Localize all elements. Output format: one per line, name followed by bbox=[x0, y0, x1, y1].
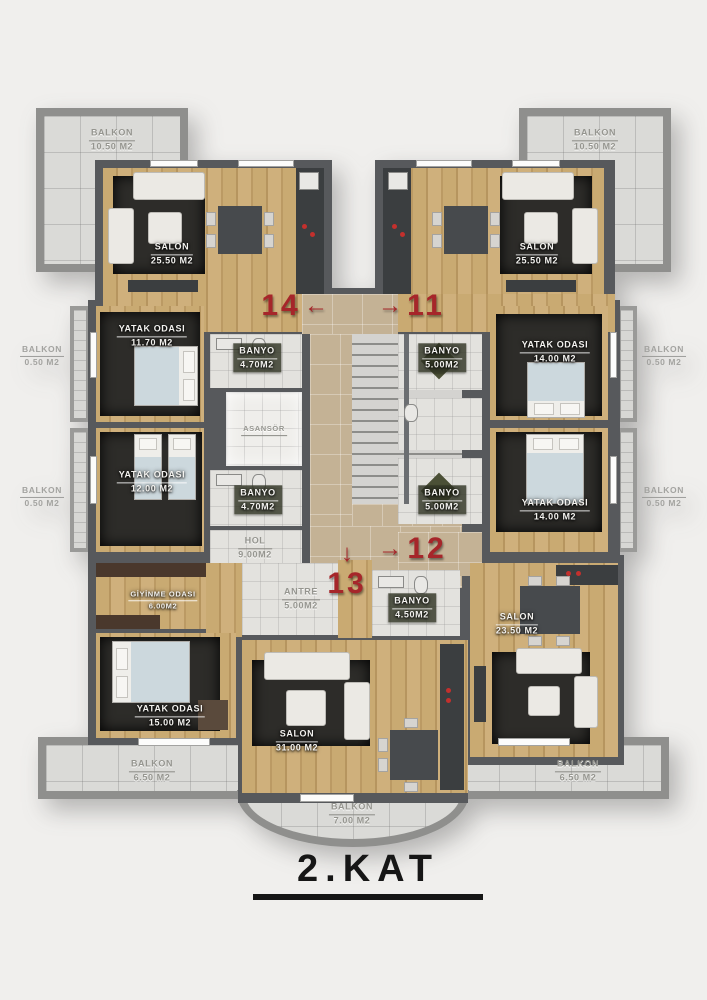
balcony-side-left-upper bbox=[70, 306, 90, 422]
sofa bbox=[516, 648, 582, 674]
unit-number-14: 14 bbox=[261, 289, 300, 323]
blanket bbox=[135, 347, 179, 405]
dining-table bbox=[444, 206, 488, 254]
fridge-icon bbox=[299, 172, 319, 190]
coffee-table bbox=[286, 690, 326, 726]
cooktop-burner-icon bbox=[392, 224, 397, 229]
balcony-label-left-lower: BALKON 0.50 M2 bbox=[20, 485, 64, 509]
arrow-down-icon: ↓ bbox=[341, 540, 353, 568]
balcony-label-right-upper: BALKON 0.50 M2 bbox=[642, 344, 686, 368]
hall-strip-bottom-left bbox=[206, 563, 242, 637]
sink-icon bbox=[216, 474, 242, 486]
arrow-left-icon: ← bbox=[304, 292, 328, 320]
blanket bbox=[528, 363, 584, 401]
chair bbox=[264, 212, 274, 226]
chair bbox=[264, 234, 274, 248]
room-label-salon-bc: SALON 31.00 M2 bbox=[276, 728, 318, 753]
toilet-icon bbox=[404, 404, 418, 422]
unit-number-11: 11 bbox=[407, 289, 445, 323]
chair bbox=[378, 738, 388, 752]
balcony-side-left-lower bbox=[70, 428, 90, 552]
room-label-antre: ANTRE 5.00M2 bbox=[282, 586, 320, 611]
window bbox=[150, 160, 198, 167]
room-label-giyinme: GİYİNME ODASI 6.00M2 bbox=[128, 589, 197, 611]
tv-unit bbox=[128, 280, 198, 292]
cooktop-burner-icon bbox=[310, 232, 315, 237]
toilet-icon bbox=[414, 576, 428, 594]
dining-table bbox=[390, 730, 438, 780]
cooktop-burner-icon bbox=[446, 688, 451, 693]
room-label-bedroom-1400-upper: YATAK ODASI 14.00 M2 bbox=[520, 339, 590, 364]
kitchen-counter-bottom-center bbox=[440, 644, 464, 790]
balcony-door bbox=[498, 738, 570, 746]
room-label-banyo-bc: BANYO 4.50M2 bbox=[388, 593, 436, 622]
chair bbox=[378, 758, 388, 772]
pillow bbox=[560, 403, 580, 415]
pillow bbox=[533, 438, 553, 450]
room-label-banyo-ul: BANYO 4.70M2 bbox=[233, 343, 281, 372]
balcony-label-tr: BALKON 10.50 M2 bbox=[572, 127, 618, 152]
sofa bbox=[133, 172, 205, 200]
chair bbox=[490, 212, 500, 226]
tv-unit bbox=[506, 280, 576, 292]
chair bbox=[206, 212, 216, 226]
room-label-hol: HOL 9.00M2 bbox=[238, 535, 272, 560]
room-label-bedroom-1400-lower: YATAK ODASI 14.00 M2 bbox=[520, 497, 590, 522]
room-label-salon-br: SALON 23.50 M2 bbox=[496, 611, 538, 636]
cooktop-burner-icon bbox=[576, 571, 581, 576]
armchair bbox=[344, 682, 370, 740]
room-label-banyo-ur: BANYO 5.00M2 bbox=[418, 343, 466, 372]
window bbox=[610, 332, 617, 378]
room-label-bedroom-1200: YATAK ODASI 12.00 M2 bbox=[117, 469, 187, 494]
chair bbox=[490, 234, 500, 248]
chair bbox=[556, 576, 570, 586]
room-label-salon-tl: SALON 25.50 M2 bbox=[151, 241, 193, 266]
blanket bbox=[131, 642, 189, 702]
dining-table bbox=[218, 206, 262, 254]
pillow bbox=[534, 403, 554, 415]
chair bbox=[528, 636, 542, 646]
balcony-label-tl: BALKON 10.50 M2 bbox=[89, 127, 135, 152]
sofa bbox=[502, 172, 574, 200]
pillow bbox=[173, 438, 191, 450]
balcony-label-bl: BALKON 6.50 M2 bbox=[129, 758, 175, 783]
balcony-label-br: BALKON 6.50 M2 bbox=[555, 758, 601, 783]
sofa bbox=[264, 652, 350, 680]
fridge-icon bbox=[388, 172, 408, 190]
arrow-right-icon: → bbox=[378, 292, 402, 320]
cooktop-burner-icon bbox=[400, 232, 405, 237]
coffee-table bbox=[148, 212, 182, 244]
room-label-banyo-lr: BANYO 5.00M2 bbox=[418, 485, 466, 514]
bed bbox=[526, 434, 584, 504]
window bbox=[416, 160, 472, 167]
chair bbox=[206, 234, 216, 248]
tv-unit bbox=[474, 666, 486, 722]
wardrobe bbox=[96, 563, 206, 577]
balcony-side-right-upper bbox=[617, 306, 637, 422]
unit-number-12: 12 bbox=[407, 532, 446, 566]
coffee-table bbox=[524, 212, 558, 244]
coffee-table bbox=[528, 686, 560, 716]
window bbox=[90, 456, 97, 504]
chair bbox=[528, 576, 542, 586]
sink-icon bbox=[378, 576, 404, 588]
balcony-side-right-lower bbox=[617, 428, 637, 552]
pillow bbox=[183, 351, 195, 373]
room-label-elevator: ASANSÖR bbox=[241, 424, 287, 436]
wardrobe bbox=[96, 615, 160, 629]
blanket bbox=[527, 453, 583, 503]
room-label-banyo-ll: BANYO 4.70M2 bbox=[234, 485, 282, 514]
room-label-salon-tr: SALON 25.50 M2 bbox=[516, 241, 558, 266]
armchair bbox=[572, 208, 598, 264]
armchair bbox=[108, 208, 134, 264]
pillow bbox=[116, 676, 128, 698]
room-label-bedroom-1170: YATAK ODASI 11.70 M2 bbox=[117, 323, 187, 348]
window bbox=[610, 456, 617, 504]
bed bbox=[134, 346, 198, 406]
balcony-door bbox=[138, 738, 210, 746]
pillow bbox=[139, 438, 157, 450]
chair bbox=[432, 234, 442, 248]
balcony-label-left-upper: BALKON 0.50 M2 bbox=[20, 344, 64, 368]
room-label-bedroom-1500: YATAK ODASI 15.00 M2 bbox=[135, 703, 205, 728]
pillow bbox=[183, 379, 195, 401]
unit-number-13: 13 bbox=[327, 567, 366, 601]
window bbox=[90, 332, 97, 378]
pillow bbox=[559, 438, 579, 450]
pillow bbox=[116, 648, 128, 670]
chair bbox=[432, 212, 442, 226]
chair bbox=[404, 782, 418, 792]
armchair bbox=[574, 676, 598, 728]
bed bbox=[527, 362, 585, 418]
corridor-vertical bbox=[310, 334, 352, 534]
chair bbox=[404, 718, 418, 728]
balcony-label-bc: BALKON 7.00 M2 bbox=[329, 801, 375, 826]
balcony-label-right-lower: BALKON 0.50 M2 bbox=[642, 485, 686, 509]
chair bbox=[556, 636, 570, 646]
window bbox=[238, 160, 294, 167]
window bbox=[512, 160, 560, 167]
floor-title: 2.KAT bbox=[253, 848, 483, 900]
cooktop-burner-icon bbox=[302, 224, 307, 229]
arrow-right-icon: → bbox=[378, 535, 402, 563]
cooktop-burner-icon bbox=[446, 698, 451, 703]
bed bbox=[112, 641, 190, 703]
